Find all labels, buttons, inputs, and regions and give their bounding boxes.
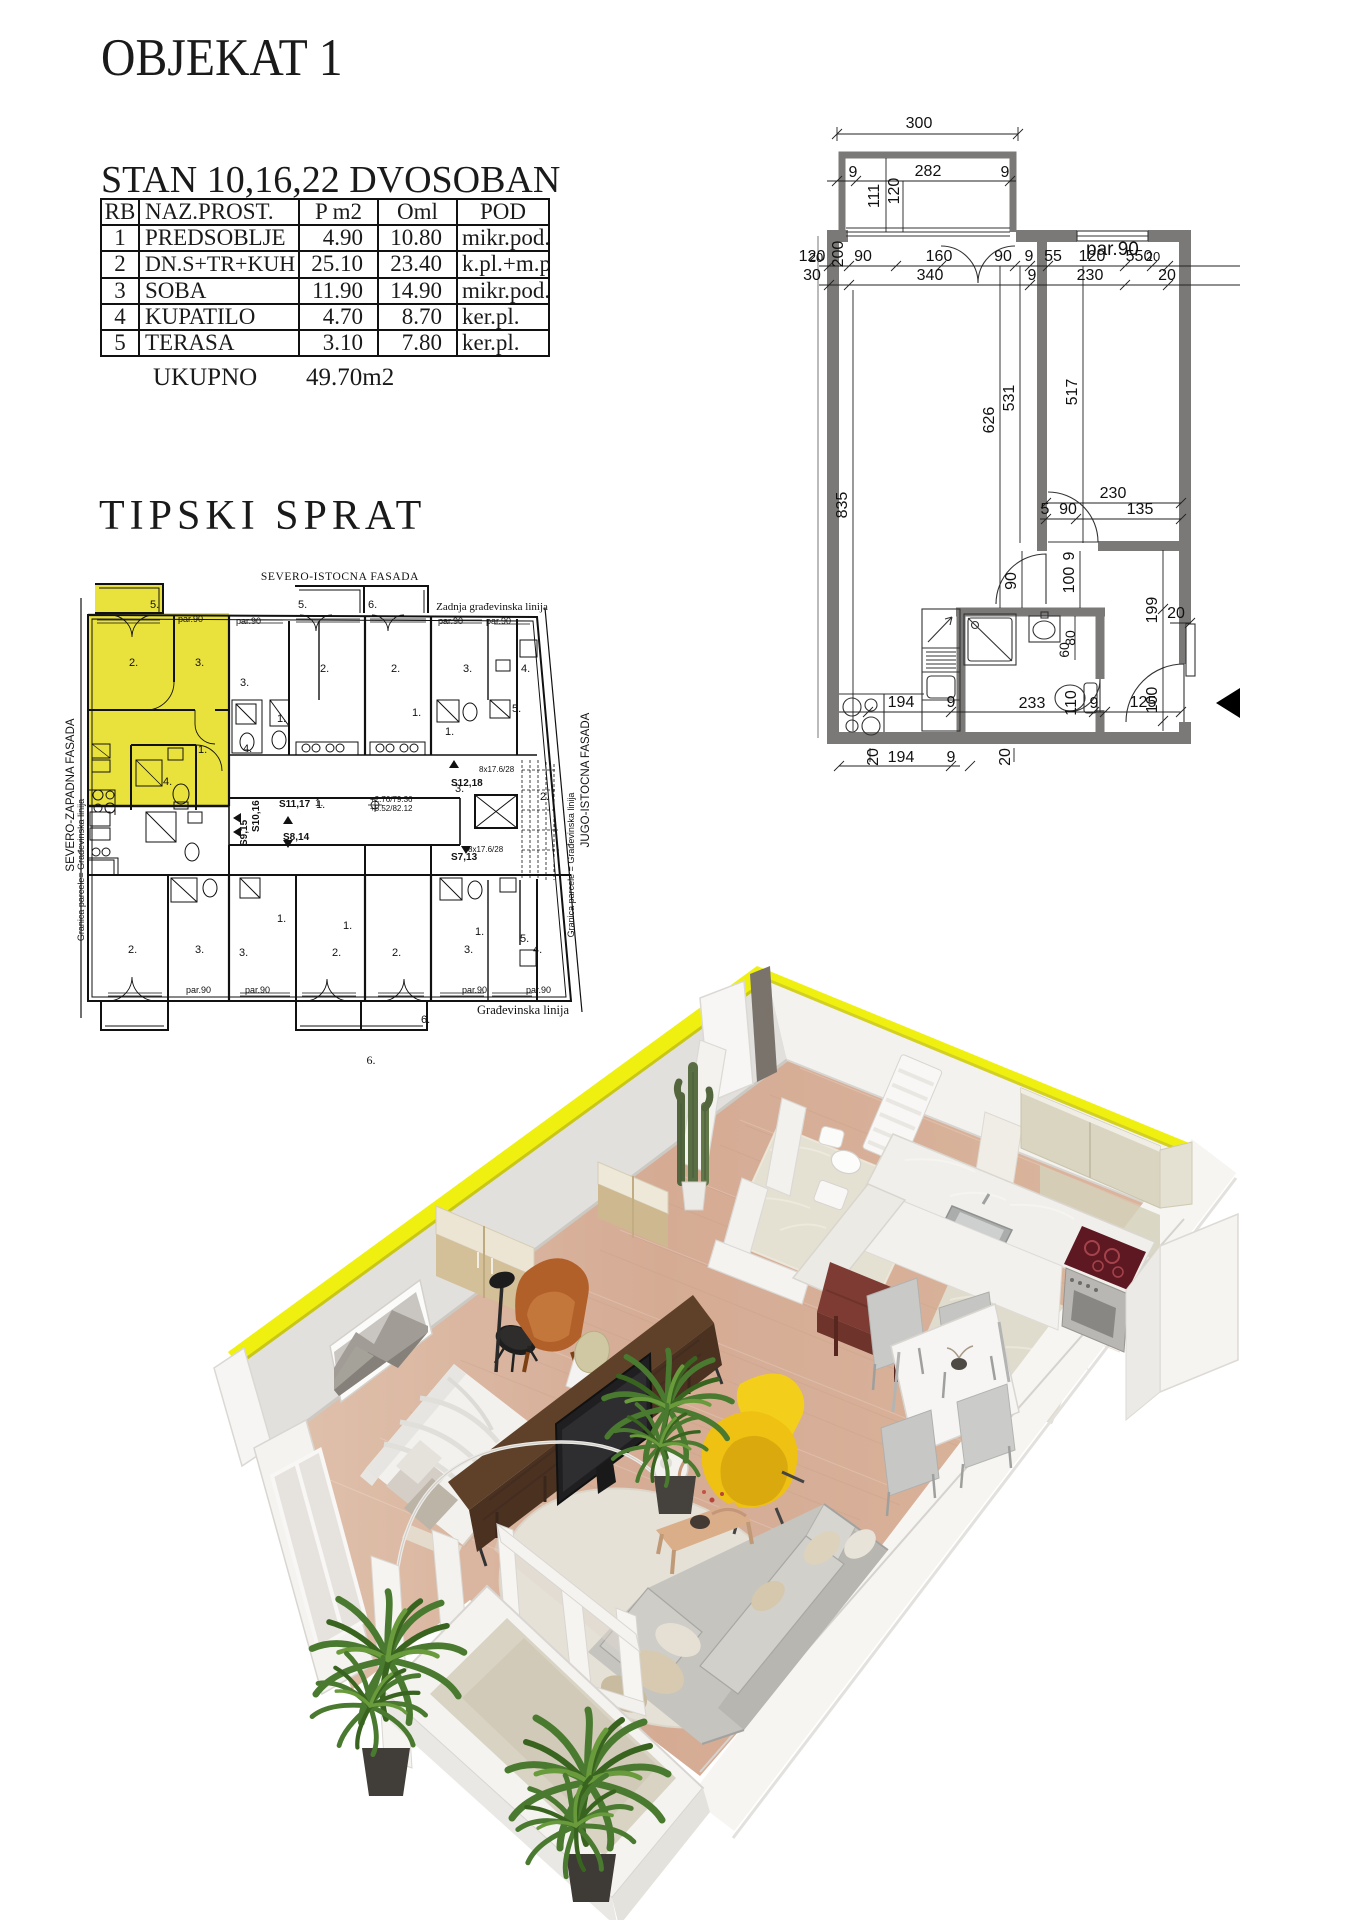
svg-text:S12,18: S12,18 (451, 778, 483, 789)
svg-text:3.: 3. (463, 663, 472, 675)
svg-text:1.: 1. (343, 920, 352, 932)
svg-text:par.90: par.90 (236, 616, 261, 626)
svg-text:90: 90 (1059, 501, 1077, 518)
svg-text:8x17.6/28: 8x17.6/28 (468, 845, 504, 854)
svg-text:100: 100 (1061, 567, 1078, 594)
svg-text:2.: 2. (128, 944, 137, 956)
svg-text:194: 194 (888, 694, 915, 711)
svg-text:9: 9 (1028, 267, 1037, 284)
svg-text:Granica parcele= Građevinska l: Granica parcele= Građevinska linija (76, 799, 86, 941)
svg-text:125: 125 (1130, 694, 1157, 711)
svg-text:230: 230 (1077, 267, 1104, 284)
svg-text:517: 517 (1064, 379, 1081, 406)
svg-text:par.90: par.90 (438, 616, 463, 626)
svg-text:30: 30 (803, 267, 821, 284)
svg-text:par.90: par.90 (1086, 239, 1139, 260)
svg-text:90: 90 (994, 248, 1012, 265)
svg-text:5: 5 (1041, 501, 1050, 518)
svg-text:110: 110 (1063, 690, 1080, 716)
svg-text:230: 230 (1100, 485, 1127, 502)
svg-text:20: 20 (1158, 267, 1176, 284)
svg-text:300: 300 (906, 115, 933, 132)
svg-text:111: 111 (866, 184, 883, 208)
svg-text:S10,16: S10,16 (251, 800, 262, 832)
svg-text:S8,14: S8,14 (283, 832, 310, 843)
svg-text:5.: 5. (150, 599, 159, 611)
svg-text:9: 9 (947, 749, 956, 766)
svg-text:3.: 3. (240, 677, 249, 689)
svg-text:160: 160 (926, 248, 953, 265)
svg-text:5.: 5. (298, 599, 307, 611)
svg-text:par.90: par.90 (486, 616, 511, 626)
svg-text:par.90: par.90 (178, 614, 203, 624)
svg-text:4.: 4. (243, 743, 252, 755)
svg-text:1.: 1. (277, 913, 286, 925)
svg-text:340: 340 (917, 267, 944, 284)
svg-text:20: 20 (1146, 249, 1160, 264)
svg-text:5.: 5. (512, 703, 521, 715)
svg-text:199: 199 (1144, 597, 1161, 624)
svg-text:S9,15: S9,15 (239, 819, 250, 846)
svg-text:90: 90 (1003, 572, 1020, 590)
svg-text:120: 120 (886, 178, 903, 205)
svg-text:Granica parcele = Građevinska: Granica parcele = Građevinska linija (566, 793, 576, 938)
svg-text:8x17.6/28: 8x17.6/28 (479, 765, 515, 774)
svg-text:9: 9 (1061, 551, 1078, 560)
svg-text:55: 55 (1044, 248, 1062, 265)
svg-text:9: 9 (849, 164, 858, 181)
svg-text:JUGO-ISTOCNA FASADA: JUGO-ISTOCNA FASADA (580, 712, 592, 847)
svg-text:2.: 2. (320, 663, 329, 675)
svg-text:1.: 1. (412, 707, 421, 719)
svg-text:+2.76/79.36: +2.76/79.36 (370, 795, 413, 804)
svg-text:6.: 6. (368, 599, 377, 611)
svg-text:2.: 2. (391, 663, 400, 675)
svg-text:2.: 2. (540, 791, 549, 803)
svg-text:90: 90 (854, 248, 872, 265)
svg-text:20: 20 (809, 250, 823, 265)
svg-text:2.: 2. (129, 657, 138, 669)
svg-text:3.: 3. (195, 657, 204, 669)
svg-text:233: 233 (1019, 695, 1046, 712)
svg-text:282: 282 (915, 163, 942, 180)
svg-text:Zadnja građevinska linija: Zadnja građevinska linija (436, 601, 548, 613)
svg-text:9: 9 (1001, 164, 1010, 181)
svg-text:531: 531 (1001, 385, 1018, 412)
svg-text:626: 626 (981, 407, 998, 434)
svg-text:9: 9 (1025, 248, 1034, 265)
svg-text:20: 20 (865, 748, 882, 766)
svg-text:SEVERO-ISTOCNA FASADA: SEVERO-ISTOCNA FASADA (261, 571, 419, 583)
svg-text:1.: 1. (198, 744, 207, 756)
svg-text:+5.52/82.12: +5.52/82.12 (370, 804, 413, 813)
svg-text:1.: 1. (315, 798, 323, 809)
svg-text:1.: 1. (277, 713, 286, 725)
svg-text:9: 9 (947, 694, 956, 711)
svg-text:S11,17: S11,17 (279, 799, 311, 810)
svg-text:1.: 1. (475, 926, 484, 938)
svg-text:200: 200 (830, 241, 847, 268)
svg-text:4.: 4. (521, 663, 530, 675)
svg-text:4.: 4. (163, 776, 172, 788)
svg-text:835: 835 (834, 492, 851, 519)
svg-text:9: 9 (1090, 695, 1099, 712)
svg-text:20: 20 (1167, 605, 1185, 622)
svg-text:135: 135 (1127, 501, 1154, 518)
svg-text:20: 20 (997, 748, 1014, 766)
svg-text:1.: 1. (445, 726, 454, 738)
svg-text:60: 60 (1056, 642, 1072, 658)
svg-text:194: 194 (888, 749, 915, 766)
